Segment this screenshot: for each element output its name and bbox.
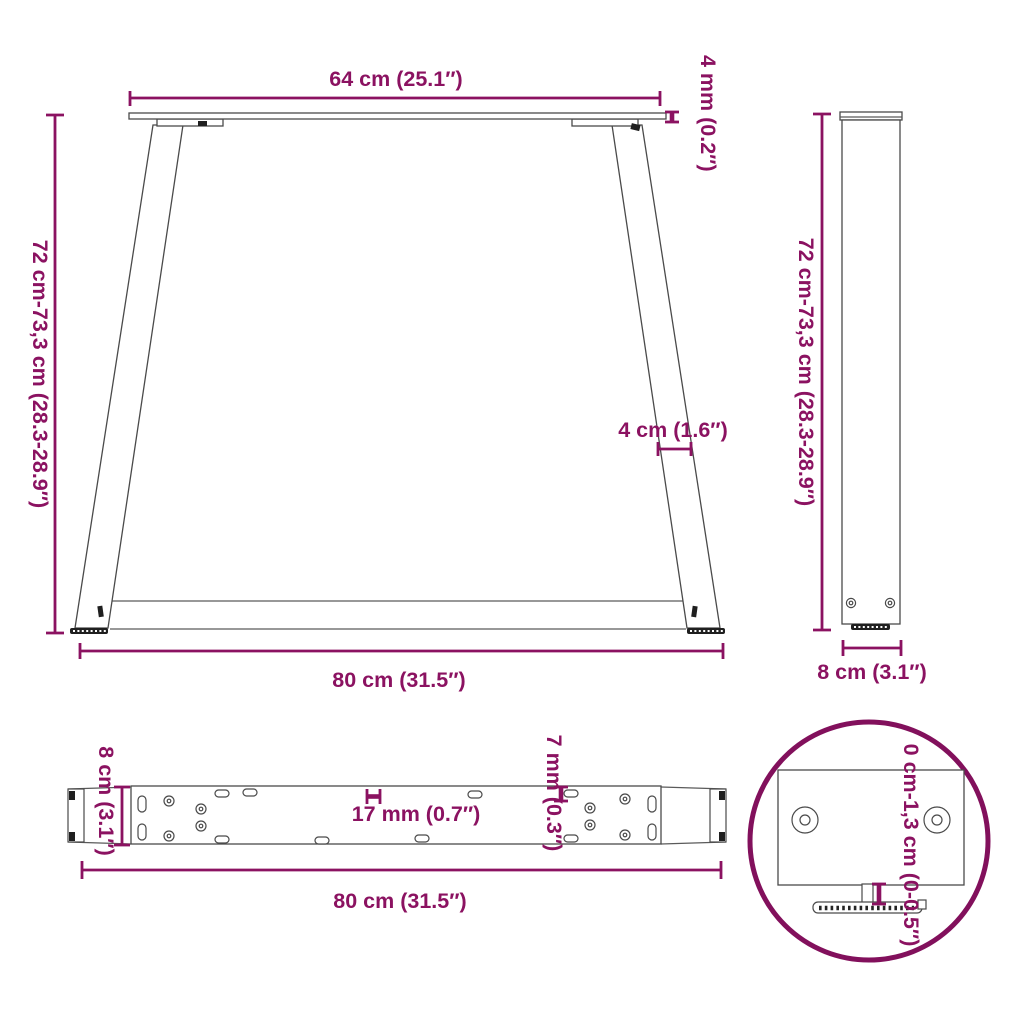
dim-bar-length [82,861,721,879]
slot [648,796,656,812]
label-bottom-width: 80 cm (31.5″) [332,668,465,692]
label-front-height: 72 cm-73,3 cm (28.3-28.9″) [28,240,52,508]
side-screw-left-center [849,601,853,605]
left-top-bracket [157,119,223,126]
detail-foot-stem [862,884,873,903]
slot [138,796,146,812]
slot [215,836,229,843]
dim-bottom-width [80,643,723,659]
left-cap-slot-bottom [69,832,75,841]
dimension-diagram: 64 cm (25.1″) 4 mm (0.2″) 72 cm-73,3 cm … [0,0,1024,1024]
screw-hole-center [588,806,592,810]
left-foot-pad [70,628,108,634]
screw-hole-center [167,834,171,838]
screw-hole-center [623,833,627,837]
screw-hole-center [199,807,203,811]
label-side-depth: 8 cm (3.1″) [817,660,926,684]
top-view: 8 cm (3.1″) 17 mm (0.7″) 7 mm (0.3″) 80 … [68,735,726,913]
right-leg [612,125,720,628]
dim-bar-thickness [665,112,679,122]
detail-screw-right-center [932,815,942,825]
label-bar-depth: 8 cm (3.1″) [94,746,118,855]
side-leg-body [842,120,900,624]
dim-side-depth [843,640,901,656]
slot [315,837,329,844]
slot [468,791,482,798]
label-adjust-range: 0 cm-1,3 cm (0-0.5″) [899,744,923,947]
label-bar-thickness: 4 mm (0.2″) [696,55,720,172]
detail-screw-left-center [800,815,810,825]
front-view: 64 cm (25.1″) 4 mm (0.2″) 72 cm-73,3 cm … [28,55,728,692]
diagram-svg: 64 cm (25.1″) 4 mm (0.2″) 72 cm-73,3 cm … [0,0,1024,1024]
side-top-cap [840,112,902,120]
screw-hole-center [588,823,592,827]
left-leg [75,125,183,628]
right-cap-slot-bottom [719,832,725,841]
dim-top-width [130,91,660,106]
slot [243,789,257,796]
label-side-height: 72 cm-73,3 cm (28.3-28.9″) [794,238,818,506]
right-top-bracket [572,119,638,126]
screw-hole-center [167,799,171,803]
side-view: 72 cm-73,3 cm (28.3-28.9″) 8 cm (3.1″) [794,112,927,684]
slot [648,824,656,840]
label-bar-length: 80 cm (31.5″) [333,889,466,913]
right-foot-pad [687,628,725,634]
side-foot-pad [851,624,890,630]
label-top-width: 64 cm (25.1″) [329,67,462,91]
screw-hole-center [199,824,203,828]
left-cap-slot-top [69,791,75,800]
side-screw-right-center [888,601,892,605]
screw-hole-center [623,797,627,801]
foot-detail-view: 0 cm-1,3 cm (0-0.5″) [750,722,988,960]
label-hole-diameter: 7 mm (0.3″) [542,735,566,852]
slot [215,790,229,797]
label-slot-spacing: 17 mm (0.7″) [352,802,481,826]
bracket-screw-left [198,121,207,126]
right-cap-slot-top [719,791,725,800]
slot [138,824,146,840]
label-leg-width: 4 cm (1.6″) [618,418,727,442]
top-mounting-bar [129,113,666,119]
slot [415,835,429,842]
